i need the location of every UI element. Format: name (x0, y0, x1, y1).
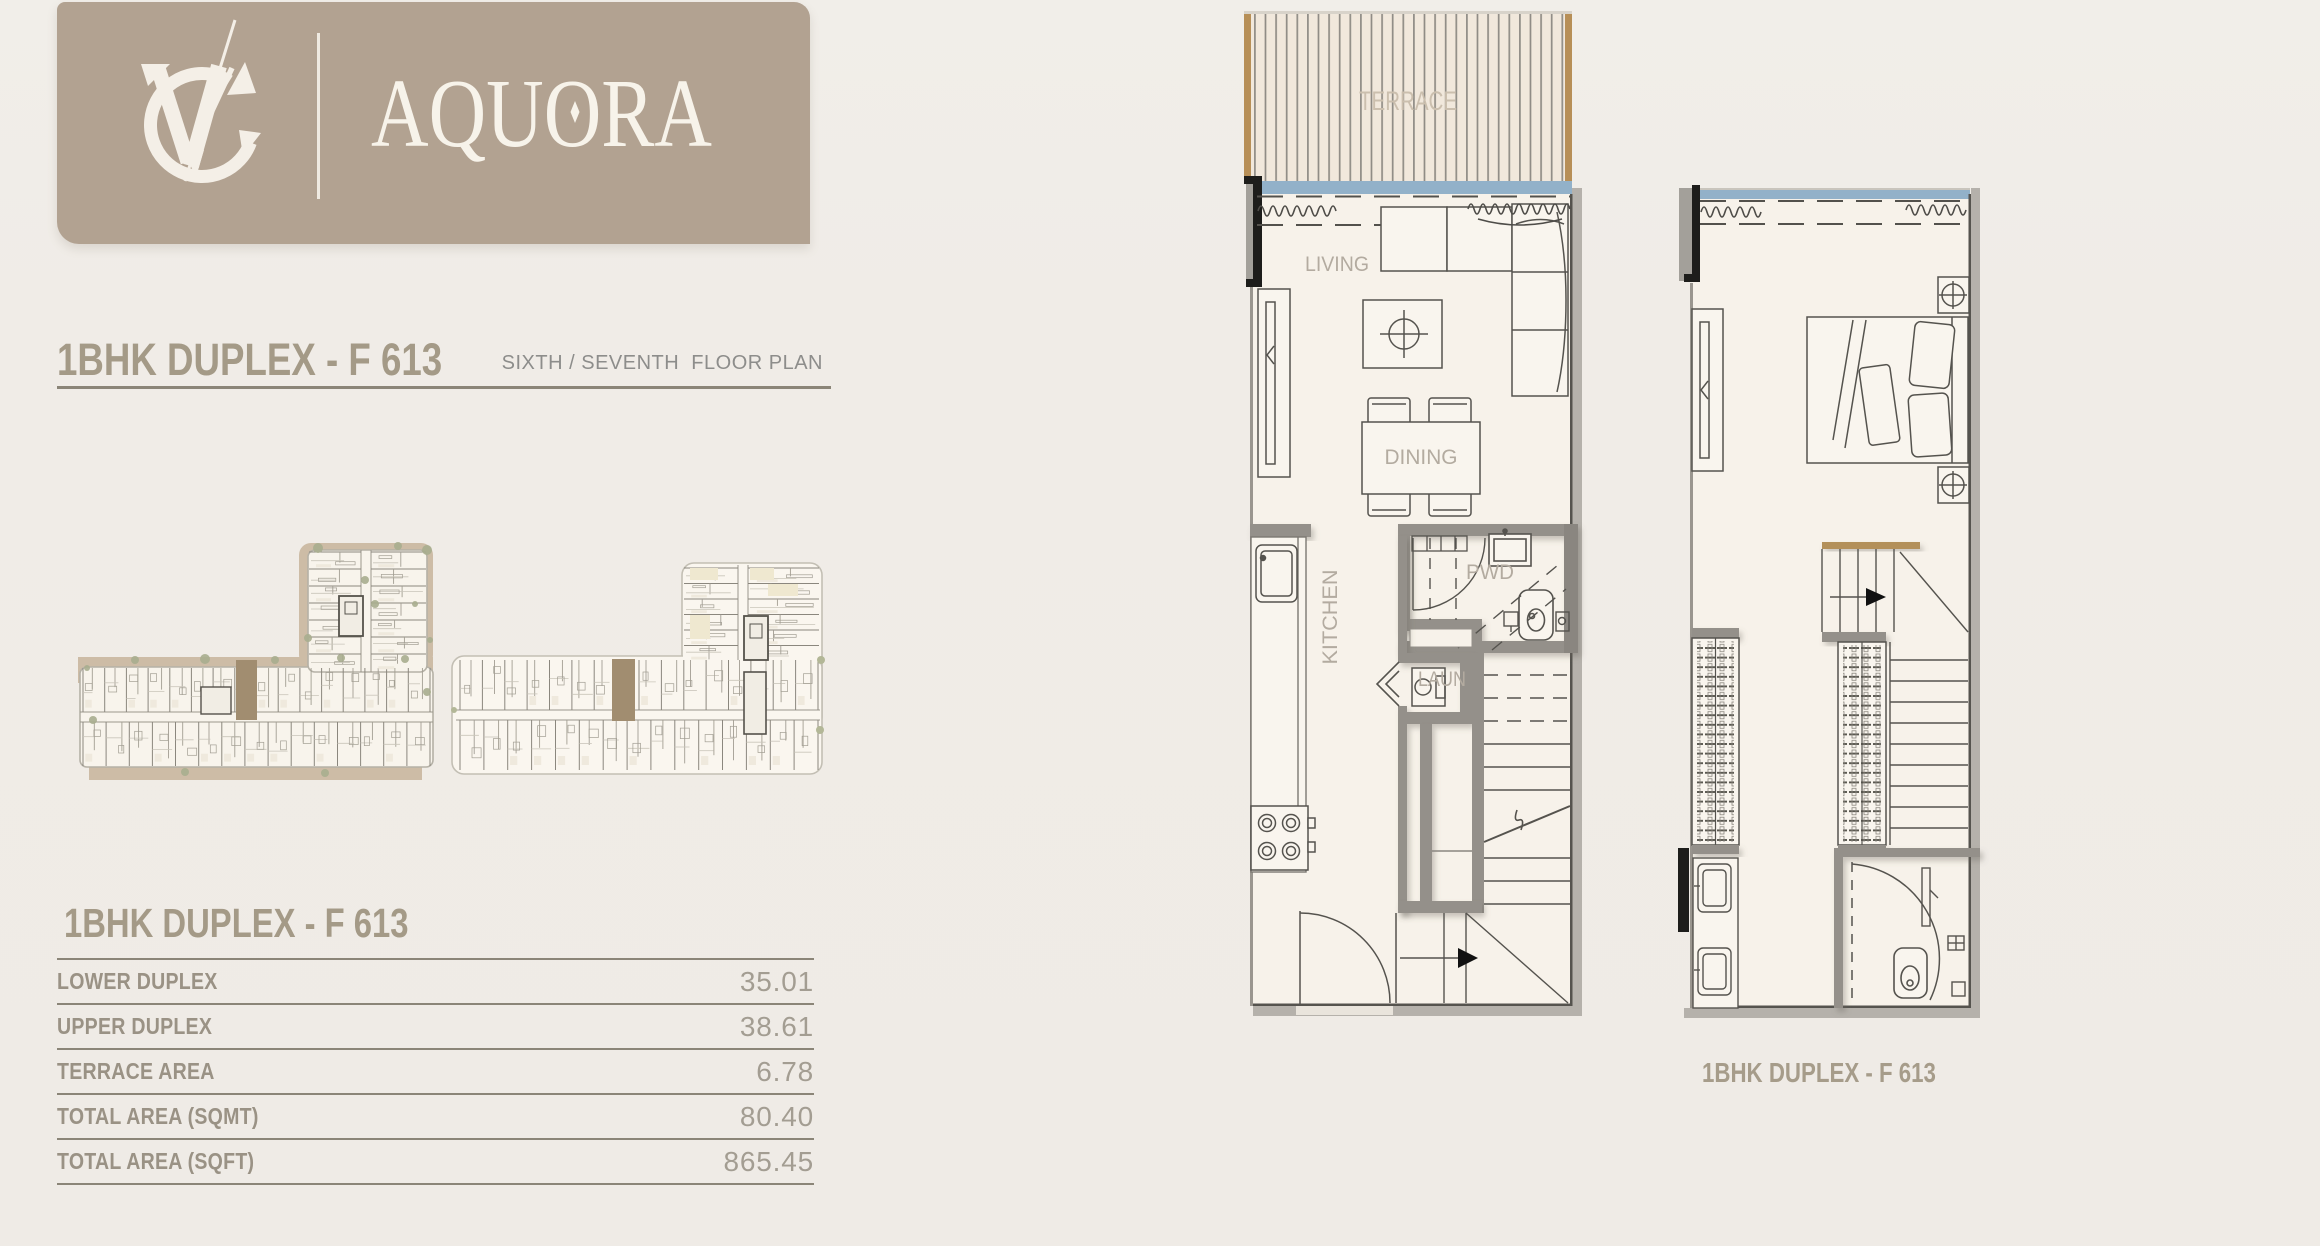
svg-text:LIVING: LIVING (1305, 253, 1369, 276)
svg-text:DINING: DINING (1385, 446, 1458, 469)
svg-text:KITCHEN: KITCHEN (1319, 570, 1342, 665)
svg-text:PWD: PWD (1466, 561, 1514, 584)
svg-text:LAUN: LAUN (1418, 668, 1466, 691)
svg-text:AQUORA: AQUORA (371, 60, 712, 167)
svg-text:TERRACE: TERRACE (1359, 86, 1457, 116)
